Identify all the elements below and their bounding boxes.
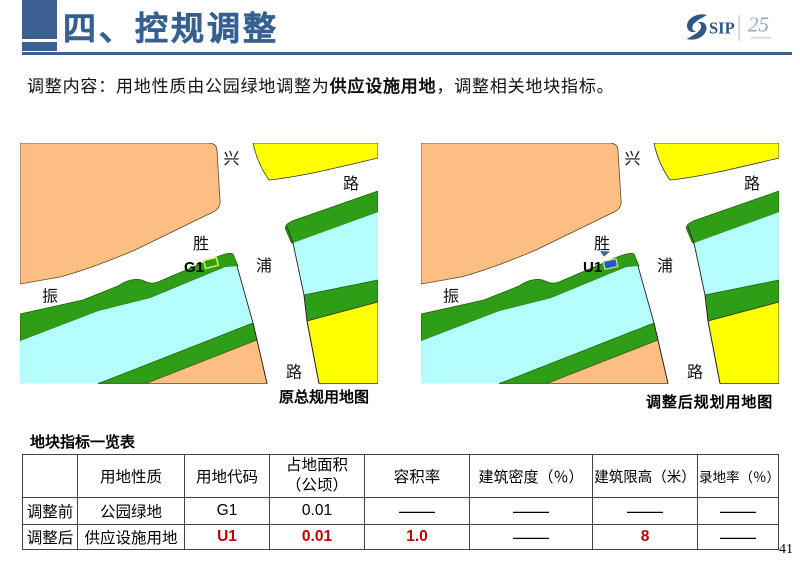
svg-text:U1: U1 xyxy=(583,259,602,276)
svg-text:浦: 浦 xyxy=(256,257,272,275)
svg-text:振: 振 xyxy=(42,288,58,306)
svg-text:路: 路 xyxy=(286,364,302,382)
svg-text:SUZHOU INDUSTRIAL PARK: SUZHOU INDUSTRIAL PARK xyxy=(751,36,771,40)
svg-text:路: 路 xyxy=(687,364,703,382)
svg-text:胜: 胜 xyxy=(193,235,209,253)
svg-text:兴: 兴 xyxy=(224,150,240,168)
svg-text:浦: 浦 xyxy=(657,257,673,275)
svg-text:路: 路 xyxy=(744,175,760,193)
svg-text:SIP: SIP xyxy=(709,19,735,38)
svg-text:兴: 兴 xyxy=(625,150,641,168)
svg-text:25: 25 xyxy=(748,13,769,37)
svg-text:胜: 胜 xyxy=(594,235,610,253)
svg-text:路: 路 xyxy=(343,175,359,193)
svg-text:G1: G1 xyxy=(184,259,204,276)
svg-text:振: 振 xyxy=(443,288,459,306)
